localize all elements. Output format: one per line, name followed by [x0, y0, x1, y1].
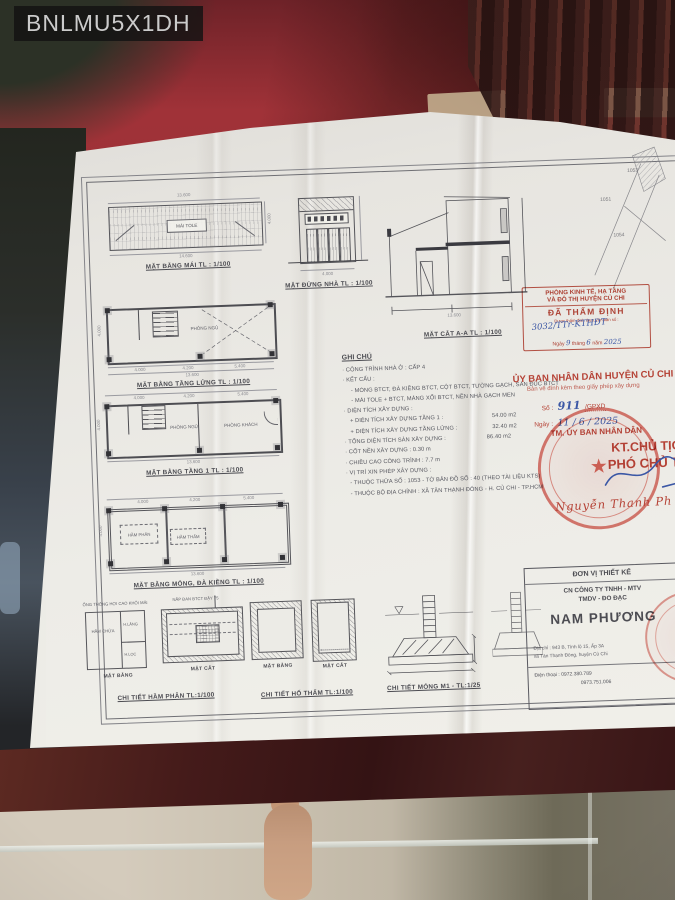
column-point: [268, 302, 273, 307]
cell-label: HẦM CHỨA: [91, 628, 114, 634]
date-word: năm: [592, 340, 602, 346]
section-aa-linework: [373, 169, 543, 325]
photo-scene: 13.600 MÁI TOLE 14.600 4.000 MẶT BẰNG MÁ…: [0, 0, 675, 900]
column-point: [107, 357, 112, 362]
soak-pit-section-walls: [311, 598, 357, 662]
signboard: [304, 212, 348, 225]
view-label: MẶT BẰNG: [263, 663, 293, 670]
septic-plan-outline: HẦM CHỨA H.LẮNG H.LỌC: [85, 610, 147, 670]
dim-label: 4.000: [133, 395, 144, 400]
front-elevation-drawing: 4.000 MẶT ĐỨNG NHÀ TL : 1/100: [286, 194, 369, 293]
dim-label: 4.200: [183, 393, 194, 398]
parcel-number: 1051: [600, 197, 611, 203]
filter-block: [195, 624, 220, 643]
dim-label: 4.000: [98, 525, 103, 536]
footing-column: [164, 559, 169, 564]
date-label: Ngày :: [534, 421, 553, 429]
footing-column: [108, 561, 113, 566]
approval-stamp-block: ỦY BAN NHÂN DÂN HUYỆN CỦ CHI Bản vẽ đính…: [496, 363, 675, 533]
soak-pit-section-detail: MẶT CẮT: [308, 594, 359, 682]
date-year-handwritten: 2025: [604, 338, 622, 346]
elevation-caption: MẶT ĐỨNG NHÀ TL : 1/100: [285, 279, 373, 289]
phone-number: 0972.380.789: [561, 671, 592, 678]
stair: [141, 405, 166, 430]
footing-column: [220, 504, 225, 509]
appraisal-stamp: PHÒNG KINH TẾ, HẠ TẦNG VÀ ĐÔ THỊ HUYỆN C…: [522, 284, 652, 351]
view-label: MẶT BẰNG: [103, 672, 133, 679]
column-point: [273, 398, 278, 403]
parcel-number: 1054: [613, 232, 624, 238]
dim-label: 4.000: [322, 271, 333, 276]
gravel-layer: [320, 649, 348, 651]
foundation-caption: MẶT BẰNG MÓNG, ĐÀ KIỀNG TL : 1/100: [134, 578, 265, 590]
void-cross: [200, 305, 272, 356]
date-month-handwritten: 6: [586, 339, 591, 347]
mezzanine-plan-drawing: PHÒNG NGỦ 4.000 4.200 5.400 13.600 4.000…: [98, 297, 287, 392]
note-text: · DIỆN TÍCH XÂY DỰNG :: [344, 406, 413, 415]
section-aa-drawing: 13.600 MẶT CẮT A-A TL : 1/100: [373, 169, 547, 347]
partial-round-seal: ★: [644, 589, 675, 684]
partition-wall: [121, 641, 145, 643]
footing-column: [162, 506, 167, 511]
dim-label: 4.000: [134, 367, 145, 372]
dim-label: 13.600: [187, 459, 201, 464]
soak-pit-ring: [250, 600, 304, 660]
building-outline: [298, 196, 356, 264]
footing-column: [280, 555, 285, 560]
number-label: Số :: [542, 405, 554, 412]
septic-section-interior: [166, 611, 240, 658]
stair: [152, 311, 179, 338]
dim-label: 4.000: [96, 419, 101, 430]
column-point: [269, 351, 274, 356]
view-label: MẶT CẮT: [323, 663, 348, 670]
dim-label: 13.600: [177, 192, 191, 197]
dim-label: 13.600: [191, 571, 205, 576]
dim-label: 4.000: [96, 325, 101, 336]
dim-label: 13.600: [447, 312, 461, 317]
footing-m2-partial: [490, 590, 543, 676]
foundation-plan-drawing: 4.000 4.200 5.400 HẦM PHÂN HẦM THẤM 13.6…: [99, 491, 296, 596]
view-label: MẶT CẮT: [191, 665, 216, 672]
site-plan-fragment: 1053 1051 1054: [582, 144, 675, 297]
column-point: [197, 448, 202, 453]
dim-label: 5.400: [234, 363, 245, 368]
septic-plan-detail: ỐNG THÔNG HƠI CAO KHỎI MÁI HẦM CHỨA H.LẮ…: [81, 604, 154, 691]
septic-section-walls: [161, 606, 245, 663]
lid-note: NẮP ĐAN BTCT ĐẬY 75: [172, 595, 218, 602]
title-block-header: ĐƠN VỊ THIẾT KẾ: [525, 567, 675, 580]
footing-m1-detail: CHI TIẾT MÓNG M1 - TL:1/25: [382, 590, 482, 693]
date-word: tháng: [572, 341, 585, 347]
footing-partial-linework: [490, 590, 543, 676]
dim-label: 4.200: [182, 365, 193, 370]
footing-column: [278, 502, 283, 507]
dimension-line: [359, 196, 362, 260]
seal-inner-ring: [654, 600, 675, 675]
dim-label: 13.600: [185, 372, 199, 377]
footing-column: [222, 557, 227, 562]
dim-label: 4.000: [137, 499, 148, 504]
cell-label: H.LẮNG: [123, 621, 138, 627]
dim-label: 5.400: [237, 391, 248, 396]
soak-pit-plan-detail: MẶT BẰNG: [247, 596, 306, 682]
signboard-text-blocks: [308, 215, 346, 221]
parapet-hatch: [299, 197, 353, 212]
section-caption: MẶT CẮT A-A TL : 1/100: [424, 329, 502, 339]
parcel-number: 1053: [627, 168, 638, 174]
septic-tank-box: HẦM PHÂN: [120, 523, 159, 544]
signature-squiggle-blue: [599, 450, 675, 497]
note-text: · KẾT CẤU :: [342, 377, 374, 384]
date-day-handwritten: 9: [566, 339, 571, 347]
footing-linework: [382, 590, 477, 681]
dim-label: 14.600: [179, 253, 193, 258]
column-point: [106, 451, 111, 456]
roof-plan-drawing: 13.600 MÁI TOLE 14.600 4.000 MẶT BẰNG MÁ…: [104, 191, 271, 279]
floor1-plan-drawing: 4.000 4.200 5.400 PHÒNG NGỦ PHÒNG KHÁCH …: [97, 389, 290, 484]
column-point: [104, 404, 109, 409]
address-line2: xã Tân Thạnh Đông, huyện Củ Chi: [534, 652, 608, 660]
column-point: [105, 308, 110, 313]
title-block: ĐƠN VỊ THIẾT KẾ CN CÔNG TY TNHH - MTV TM…: [524, 562, 675, 710]
phone-line2: 0973.751.006: [581, 679, 612, 686]
vent-note: ỐNG THÔNG HƠI CAO KHỎI MÁI: [82, 600, 147, 607]
floor1-caption: MẶT BẰNG TẦNG 1 TL : 1/100: [146, 466, 243, 477]
soak-pit-box: HẦM THẤM: [170, 528, 207, 545]
dim-label: 4.200: [189, 497, 200, 502]
note-text: · CÔNG TRÌNH NHÀ Ở : CẤP 4: [342, 365, 425, 374]
septic-section-detail: NẮP ĐAN BTCT ĐẬY 75 MẶT CẮT: [156, 596, 247, 687]
address-line1: Địa chỉ : 943 B, Tỉnh lộ 15, Ấp 3A: [533, 644, 604, 652]
cell-label: H.LỌC: [124, 651, 136, 656]
partition-wall: [120, 612, 123, 668]
date-word: Ngày: [552, 341, 564, 347]
authority-name: ỦY BAN NHÂN DÂN HUYỆN CỦ CHI: [512, 368, 673, 385]
room-label: PHÒNG NGỦ: [170, 424, 198, 430]
door-leaf: [339, 227, 351, 261]
column-point: [275, 445, 280, 450]
drawing-sheet-content: 13.600 MÁI TOLE 14.600 4.000 MẶT BẰNG MÁ…: [0, 0, 675, 900]
dim-label: 4.000: [266, 213, 271, 224]
roof-plan-caption: MẶT BẰNG MÁI TL : 1/100: [146, 261, 231, 271]
dim-label: 5.400: [243, 495, 254, 500]
watermark-code: BNLMU5X1DH: [14, 6, 203, 41]
soak-pit-interior: [257, 608, 297, 653]
stamp-date-line: Ngày 9 tháng 6 năm 2025: [524, 337, 650, 348]
footing-column: [106, 508, 111, 513]
soak-pit-section-interior: [317, 602, 351, 654]
roof-center-label: MÁI TOLE: [167, 218, 207, 232]
column-point: [197, 354, 202, 359]
